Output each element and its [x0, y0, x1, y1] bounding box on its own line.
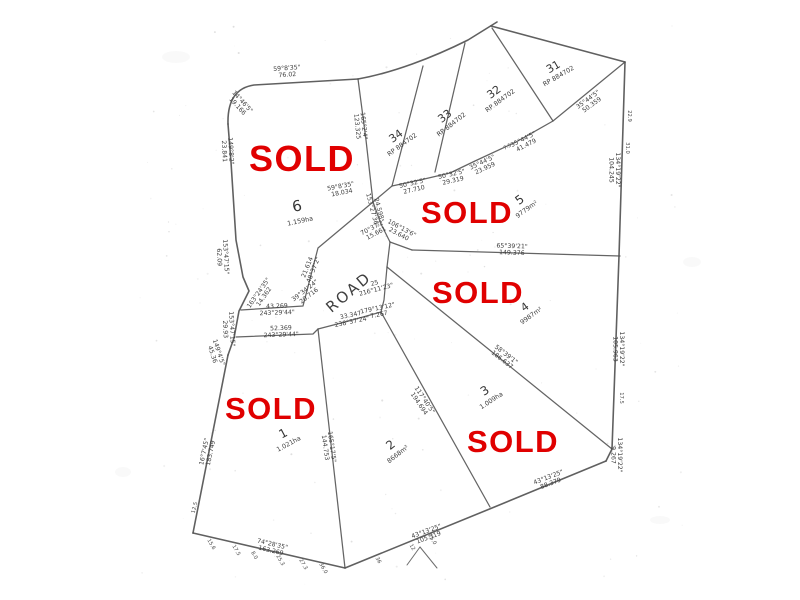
lot-label: 61.159ha	[282, 195, 314, 228]
noise-dot	[223, 118, 224, 119]
noise-dot	[507, 67, 509, 69]
noise-dot	[625, 256, 626, 257]
noise-dot	[603, 575, 605, 577]
noise-dot	[168, 231, 169, 232]
bearing-label-text: 74°28'35"163.269	[255, 537, 289, 558]
noise-dot	[185, 105, 186, 106]
noise-dot	[183, 518, 184, 519]
bearing-label: 106°13'6"23.640	[383, 217, 418, 245]
noise-dot	[304, 584, 305, 585]
bearing-label-text: 52.369243°29'44"	[263, 324, 299, 339]
bearing-label-text: 58°39'1"186.637	[489, 343, 520, 371]
noise-dot	[674, 206, 675, 207]
bearing-label-text: 106°13'6"23.640	[383, 217, 418, 245]
plat-map: 59°8'35"76.0214°46'5"19.166149°8'2"23.84…	[0, 0, 800, 600]
sold-stamp: SOLD	[467, 424, 559, 459]
bearing-label-text: 35°44'5"50.359	[574, 88, 605, 116]
noise-dot	[273, 519, 274, 520]
noise-dot	[199, 302, 200, 303]
noise-dot	[487, 80, 488, 81]
bearing-label: 43°13'25"105.319	[410, 522, 445, 546]
bearing-label: 165°2'4"123.325	[352, 112, 369, 141]
noise-dot	[207, 273, 209, 275]
tick-label: 8.0	[249, 550, 258, 560]
bearing-label-text: 59°8'35"18.034	[326, 179, 356, 199]
tick-label: 25.3	[274, 554, 285, 567]
noise-dot	[357, 164, 358, 165]
bearing-label-text: 21.61448°37'2"	[299, 253, 322, 284]
noise-dot	[379, 417, 381, 419]
bearing-label-text: 149°4'5"45.36	[205, 338, 227, 369]
noise-dot	[477, 249, 479, 251]
tick-label: 12.5	[191, 501, 200, 514]
bearing-label: 52.369243°29'44"	[263, 324, 299, 339]
bearing-label: 50°32'5"29.319	[437, 167, 467, 187]
noise-dot	[251, 320, 252, 321]
noise-dot	[640, 343, 641, 344]
lot-boundary-line	[390, 242, 412, 250]
noise-dot	[244, 195, 245, 196]
noise-dot	[203, 208, 204, 209]
outer-boundary-line	[358, 22, 497, 79]
noise-dot	[680, 471, 682, 473]
noise-dot	[333, 418, 335, 420]
noise-dot	[453, 189, 455, 191]
noise-dot	[141, 572, 143, 574]
noise-dot	[215, 150, 216, 151]
bearing-label: 16°7'45"183.749	[197, 437, 217, 467]
noise-dot	[156, 340, 158, 342]
bearing-label: 153°47'15"29.93	[220, 311, 236, 347]
bearing-label: 117°40'5"194.694	[407, 385, 437, 419]
noise-dot	[374, 332, 376, 334]
lot-boundary-line	[492, 28, 553, 121]
noise-dot	[234, 470, 236, 472]
noise-dot	[671, 194, 673, 196]
noise-dot	[150, 198, 152, 200]
lot-boundary-line	[392, 66, 423, 186]
noise-dot	[391, 508, 392, 509]
noise-dot	[435, 553, 436, 554]
noise-dot	[610, 559, 611, 560]
noise-dot	[481, 240, 482, 241]
noise-dot	[388, 332, 389, 333]
tick-label: 12	[408, 543, 417, 552]
bearing-label: 58°39'1"186.637	[489, 343, 520, 371]
noise-dot	[166, 255, 168, 257]
noise-dot	[398, 112, 399, 113]
sold-stamp: SOLD	[249, 138, 355, 179]
bearing-label: 134°19'22"105.963	[611, 331, 626, 366]
bearing-label-text: 35°44'5"41.479	[509, 129, 540, 154]
bearing-label: 59°8'35"18.034	[326, 179, 356, 199]
noise-dot	[638, 401, 639, 402]
bearing-label: 134°19'22"104.245	[607, 152, 622, 187]
lot-label: 34RP 884702	[378, 121, 418, 158]
bearing-label-text: 153°47'15"62.09	[214, 239, 230, 275]
noise-dot	[214, 430, 216, 432]
noise-dot	[362, 184, 363, 185]
noise-dot	[392, 438, 393, 439]
bearing-label: 65°39'21"149.376	[496, 241, 528, 257]
lot-label: 31.009ha	[470, 378, 505, 412]
noise-dot	[289, 560, 290, 561]
tick-label: 31.0	[624, 142, 630, 154]
bearing-label-text: 65°39'21"149.376	[496, 241, 528, 257]
noise-dot	[352, 75, 354, 77]
bearing-label-text: 149°8'2"23.841	[220, 137, 236, 165]
bearing-label: 149°8'2"23.841	[220, 137, 236, 165]
noise-dot	[418, 418, 420, 420]
noise-dot	[658, 506, 660, 508]
outer-boundary-line	[345, 461, 606, 568]
bearing-label-text: 43.269243°29'44"	[259, 302, 295, 317]
tick-label: 17.5	[618, 392, 624, 404]
noise-dot	[682, 525, 683, 526]
bearing-label-text: 117°40'5"194.694	[407, 385, 437, 419]
noise-dot	[416, 54, 417, 55]
scan-smudge	[683, 257, 701, 267]
noise-dot	[677, 313, 678, 314]
noise-dot	[468, 272, 469, 273]
noise-dot	[407, 257, 408, 258]
noise-dot	[153, 111, 155, 113]
bearing-label-text: 165°2'4"123.325	[352, 112, 369, 141]
noise-dot	[325, 40, 326, 41]
bearing-label-text: 43°13'25"105.319	[410, 522, 445, 546]
noise-dot	[351, 541, 353, 543]
tick-label: 36	[374, 556, 383, 565]
noise-dot	[214, 31, 216, 33]
noise-dot	[290, 453, 292, 455]
noise-dot	[550, 300, 551, 301]
noise-dot	[545, 204, 546, 205]
noise-dot	[411, 165, 412, 166]
lot-area-label: 1.159ha	[286, 214, 313, 227]
scan-noise	[115, 25, 701, 584]
noise-dot	[385, 66, 387, 68]
noise-dot	[484, 266, 485, 267]
noise-dot	[333, 378, 334, 379]
lot-boundary-line	[435, 43, 465, 172]
noise-dot	[385, 494, 386, 495]
noise-dot	[678, 365, 679, 366]
noise-dot	[534, 33, 535, 34]
noise-dot	[516, 113, 518, 115]
noise-dot	[314, 482, 315, 483]
lot-label: 31RP 884702	[535, 53, 576, 89]
noise-dot	[233, 26, 235, 28]
noise-dot	[171, 168, 173, 170]
noise-dot	[444, 579, 446, 581]
noise-dot	[310, 532, 312, 534]
noise-dot	[179, 115, 180, 116]
noise-dot	[402, 271, 403, 272]
noise-dot	[414, 339, 415, 340]
sold-stamp: SOLD	[225, 391, 317, 426]
tick-label: 15.6	[205, 538, 216, 551]
noise-dot	[260, 245, 262, 247]
noise-dot	[308, 240, 310, 242]
noise-dot	[147, 162, 148, 163]
scan-smudge	[162, 51, 190, 63]
bearing-label-text: 50°32'5"29.319	[437, 167, 467, 187]
bearing-label: 59°8'35"76.02	[273, 63, 301, 79]
bearing-label-text: 165°17'5"144.753	[319, 431, 338, 464]
bearing-label: 35°44'5"41.479	[509, 129, 540, 154]
noise-dot	[396, 566, 398, 568]
noise-dot	[607, 443, 609, 445]
lot-label: 32RP 884702	[476, 77, 516, 114]
noise-dot	[275, 317, 277, 319]
bearing-label: 153°47'15"62.09	[214, 239, 230, 275]
bearing-label-text: 153°47'15"29.93	[220, 311, 236, 347]
noise-dot	[399, 165, 401, 167]
tick-label: 22.9	[626, 110, 632, 122]
noise-dot	[163, 465, 165, 467]
noise-dot	[323, 310, 324, 311]
noise-dot	[395, 513, 397, 515]
bearing-label-text: 16°7'45"183.749	[197, 437, 217, 467]
noise-dot	[266, 341, 268, 343]
lot-label: 28668m²	[376, 431, 410, 465]
bearing-label-text: 50°32'5"27.710	[398, 176, 428, 196]
noise-dot	[541, 382, 542, 383]
noise-dot	[604, 124, 605, 125]
bearing-label: 149°4'5"45.36	[205, 338, 227, 369]
noise-dot	[509, 511, 510, 512]
noise-dot	[234, 45, 235, 46]
noise-dot	[451, 342, 452, 343]
bearing-label: 50°32'5"27.710	[398, 176, 428, 196]
noise-dot	[468, 394, 469, 395]
lot-boundary-line	[387, 242, 390, 267]
noise-dot	[595, 368, 597, 370]
noise-dot	[422, 449, 424, 451]
noise-dot	[435, 261, 436, 262]
lot-number: 6	[290, 196, 303, 216]
bearing-label-text: 134°19'22"105.963	[611, 331, 626, 366]
bearing-label: 74°28'35"163.269	[255, 537, 289, 558]
noise-dot	[492, 232, 493, 233]
noise-dot	[209, 468, 211, 470]
lot-boundary-line	[358, 79, 373, 202]
noise-dot	[235, 576, 236, 577]
survey-spur-line	[420, 547, 437, 568]
bearing-label: 165°17'5"144.753	[319, 431, 338, 464]
bearing-label: 43.269243°29'44"	[259, 302, 295, 317]
noise-dot	[420, 273, 422, 275]
scan-smudge	[115, 467, 131, 477]
sold-stamp: SOLD	[432, 275, 524, 310]
noise-dot	[473, 104, 475, 106]
noise-dot	[637, 217, 638, 218]
noise-dot	[294, 352, 295, 353]
noise-dot	[175, 224, 176, 225]
tick-label: 17.5	[230, 544, 241, 557]
noise-dot	[381, 399, 383, 401]
noise-dot	[450, 38, 451, 39]
noise-dot	[654, 371, 656, 373]
noise-dot	[470, 255, 471, 256]
bearing-label: 21.61448°37'2"	[299, 253, 322, 284]
bearing-label-text: 134°19'22"104.245	[607, 152, 622, 187]
scan-smudge	[650, 516, 670, 524]
noise-dot	[636, 555, 637, 556]
lot-label: 33RP 884702	[427, 100, 467, 138]
noise-dot	[576, 413, 577, 414]
noise-dot	[337, 221, 338, 222]
noise-dot	[139, 297, 140, 298]
noise-dot	[168, 221, 169, 222]
bearing-label: 35°44'5"50.359	[574, 88, 605, 116]
sold-stamp: SOLD	[421, 195, 513, 230]
noise-dot	[282, 290, 283, 291]
noise-dot	[330, 83, 332, 85]
noise-dot	[489, 73, 490, 74]
noise-dot	[238, 52, 240, 54]
survey-plan-page: 59°8'35"76.0214°46'5"19.166149°8'2"23.84…	[0, 0, 800, 600]
bearing-label-text: 59°8'35"76.02	[273, 63, 301, 79]
noise-dot	[440, 489, 442, 491]
noise-dot	[508, 110, 510, 112]
noise-dot	[197, 278, 199, 280]
noise-dot	[671, 25, 672, 26]
